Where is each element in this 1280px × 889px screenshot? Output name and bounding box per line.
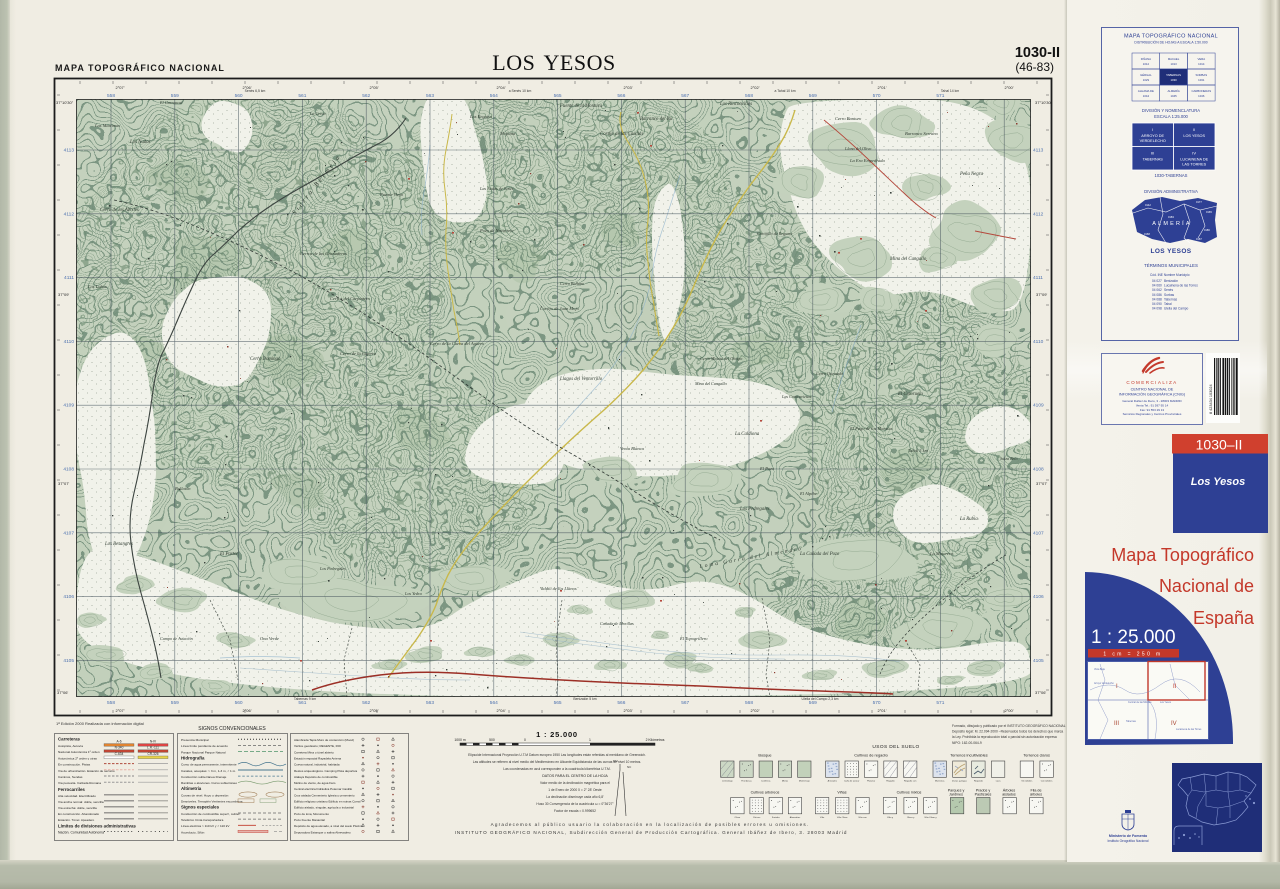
svg-text:0168: 0168 (1144, 232, 1150, 236)
svg-text:Huso 30 Convergencia de la: Huso 30 Convergencia de la cuadrícula ω … (536, 802, 614, 806)
svg-text:Ferrocarriles: Ferrocarriles (58, 787, 85, 792)
svg-text:Arrozales: Arrozales (828, 780, 838, 783)
svg-text:Tabernas: Tabernas (1126, 720, 1137, 723)
svg-text:ALMERÍA: ALMERÍA (1167, 89, 1179, 93)
svg-text:4109: 4109 (1033, 403, 1044, 409)
svg-text:2°01': 2°01' (877, 708, 886, 713)
svg-text:Mapa Topográfico: Mapa Topográfico (1111, 545, 1254, 565)
svg-text:Depósito de agua elevado, a ni: Depósito de agua elevado, a nivel del su… (294, 824, 363, 828)
svg-text:Cultivos arbóreos: Cultivos arbóreos (751, 790, 780, 794)
svg-text:Cruz aislada Cementerio Iglesi: Cruz aislada Cementerio Iglesia y cement… (294, 793, 355, 797)
svg-text:571: 571 (936, 93, 944, 99)
svg-text:Central eléctrica hidráulica P: Central eléctrica hidráulica Potemar Cas… (294, 787, 353, 791)
svg-text:Autopista, Autovía: Autopista, Autovía (58, 744, 83, 748)
svg-text:Edificio religioso cristiano E: Edificio religioso cristiano Edificio en… (294, 800, 361, 804)
svg-text:1045: 1045 (1170, 94, 1177, 98)
svg-text:565: 565 (554, 700, 562, 706)
svg-text:560: 560 (235, 700, 243, 706)
svg-text:Olivar y: Olivar y (907, 816, 915, 819)
svg-text:a Tahal 10 km: a Tahal 10 km (774, 89, 795, 93)
svg-text:Atalaya Depósito de combustibl: Atalaya Depósito de combustible (294, 775, 338, 779)
svg-text:MAPA TOPOGRÁFICO NACIONAL: MAPA TOPOGRÁFICO NACIONAL (55, 63, 225, 73)
svg-text:2°07': 2°07' (115, 708, 124, 713)
svg-text:2°06': 2°06' (242, 708, 251, 713)
svg-text:4111: 4111 (64, 275, 74, 281)
svg-text:559: 559 (171, 700, 179, 706)
svg-text:Uleila del Campo 2,3 km: Uleila del Campo 2,3 km (802, 697, 839, 701)
svg-text:566: 566 (617, 700, 625, 706)
svg-text:Sorbas: Sorbas (1164, 293, 1175, 297)
svg-text:4110: 4110 (64, 339, 75, 345)
svg-text:4112: 4112 (1033, 211, 1044, 217)
svg-text:Agradecemos al público usuario: Agradecemos al público usuario la colabo… (491, 822, 810, 827)
svg-text:37°10'30": 37°10'30" (56, 100, 74, 105)
svg-text:2°03': 2°03' (623, 708, 632, 713)
svg-text:Nacional Autonómica 1º orden: Nacional Autonómica 1º orden (58, 750, 100, 754)
svg-text:Tabernas: Tabernas (1164, 297, 1178, 301)
svg-text:Línea eléctrica > 110 kV y <: Línea eléctrica > 110 kV y < 110 kV (181, 824, 230, 828)
svg-text:2°07': 2°07' (115, 85, 124, 90)
svg-text:0165: 0165 (1206, 210, 1212, 214)
svg-text:Curso de agua permanente, inte: Curso de agua permanente, intermitente (181, 763, 237, 767)
svg-text:GÉRGAL: GÉRGAL (1140, 72, 1152, 77)
svg-text:04 062: 04 062 (1152, 288, 1162, 292)
svg-text:4106: 4106 (63, 594, 74, 600)
svg-text:Jardines: Jardines (949, 792, 963, 796)
svg-text:ARROYO DE: ARROYO DE (1141, 134, 1164, 138)
svg-text:Arroyo Verdelecho: Arroyo Verdelecho (1094, 682, 1114, 685)
svg-text:(46-83): (46-83) (1015, 60, 1054, 74)
svg-text:Nacional de: Nacional de (1159, 576, 1254, 596)
svg-text:1 de Enero de 2000 δ =: 1 de Enero de 2000 δ = 2° 28' Oeste (548, 788, 602, 792)
svg-text:Valor medio de la declinaci: Valor medio de la declinación magnética … (540, 781, 610, 785)
svg-text:Uleila del Campo: Uleila del Campo (1164, 307, 1188, 311)
svg-text:Estación espacial Rayadela Ant: Estación espacial Rayadela Antena (294, 756, 341, 760)
svg-text:37°09': 37°09' (58, 292, 69, 297)
svg-text:N-340: N-340 (115, 746, 124, 750)
svg-text:562: 562 (362, 93, 370, 99)
svg-text:4105: 4105 (63, 658, 74, 664)
svg-text:TABERNAS: TABERNAS (1166, 73, 1181, 77)
svg-text:Vértice geodésico; REGENTE, RO: Vértice geodésico; REGENTE, ROI (294, 744, 341, 748)
svg-text:MAPA TOPOGRÁFICO NACIONAL: MAPA TOPOGRÁFICO NACIONAL (1124, 33, 1218, 40)
svg-text:Desniveles. Terraplén Vertient: Desniveles. Terraplén Vertientes escombr… (181, 800, 243, 804)
svg-text:General Ibáñez de Ibero, 3 - 2: General Ibáñez de Ibero, 3 - 28003 MADRI… (1122, 399, 1182, 403)
svg-text:1: 1 (589, 738, 591, 742)
svg-text:1029: 1029 (1143, 78, 1150, 82)
svg-text:04 098: 04 098 (1152, 307, 1162, 311)
svg-text:C-634: C-634 (115, 752, 124, 756)
svg-text:USOS DEL SUELO: USOS DEL SUELO (872, 744, 919, 750)
svg-text:TÉRMINOS MUNICIPALES: TÉRMINOS MUNICIPALES (1144, 263, 1198, 268)
svg-text:4109: 4109 (63, 403, 74, 409)
svg-text:La declinación disminuye ca: La declinación disminuye cada año 6,8' (546, 795, 604, 799)
svg-text:Alta velocidad. Electrificado: Alta velocidad. Electrificado (58, 794, 96, 798)
svg-text:Venta Tel.: 91 597 95 14: Venta Tel.: 91 597 95 14 (1136, 403, 1169, 407)
svg-text:1 cm = 250 m: 1 cm = 250 m (1103, 652, 1162, 658)
svg-text:VERA: VERA (1197, 57, 1205, 61)
svg-text:Olivar: Olivar (735, 816, 741, 819)
svg-text:Vía pecuaria. Calzada Romana: Vía pecuaria. Calzada Romana (58, 781, 101, 785)
svg-text:2°02': 2°02' (750, 85, 759, 90)
svg-text:0177: 0177 (1196, 200, 1202, 204)
svg-text:ESCALA 1:25.000: ESCALA 1:25.000 (1154, 114, 1188, 119)
svg-text:Viña con: Viña con (858, 816, 867, 819)
svg-text:CENTRO NACIONAL DE: CENTRO NACIONAL DE (1131, 388, 1174, 392)
svg-text:Ministerio de Fomento: Ministerio de Fomento (1109, 834, 1148, 838)
svg-text:Lava: Lava (996, 781, 1002, 783)
svg-text:1 : 25.000: 1 : 25.000 (536, 730, 578, 739)
svg-text:04 088: 04 088 (1152, 297, 1162, 301)
svg-text:ALHAMA DE: ALHAMA DE (1138, 89, 1154, 93)
svg-text:CARBONERAS: CARBONERAS (1192, 89, 1212, 93)
svg-text:8 423434 103024: 8 423434 103024 (1209, 384, 1213, 414)
svg-text:0183: 0183 (1168, 215, 1174, 219)
svg-text:1044: 1044 (1143, 94, 1150, 98)
svg-text:Alambrada Tapia Muro de conten: Alambrada Tapia Muro de contención (Mood… (294, 738, 354, 742)
svg-text:1000 m: 1000 m (454, 738, 465, 742)
svg-text:Lentisbego: Lentisbego (722, 780, 733, 783)
svg-text:Regadío: Regadío (886, 781, 895, 783)
svg-text:NIPO: 162-00-064-9: NIPO: 162-00-064-9 (952, 741, 982, 745)
svg-text:2°02': 2°02' (750, 708, 759, 713)
svg-text:04 086: 04 086 (1152, 293, 1162, 297)
svg-text:1030: 1030 (1170, 78, 1177, 82)
svg-text:Sin árboles: Sin árboles (1021, 780, 1033, 783)
svg-text:4113: 4113 (1033, 148, 1044, 154)
svg-text:500: 500 (489, 738, 495, 742)
svg-text:567: 567 (681, 700, 689, 706)
svg-text:37°09': 37°09' (1036, 292, 1047, 297)
svg-text:2°00': 2°00' (1004, 708, 1013, 713)
svg-text:LOS YESOS: LOS YESOS (492, 50, 615, 75)
svg-text:VERDELECHO: VERDELECHO (1140, 139, 1166, 143)
svg-text:4111: 4111 (1033, 275, 1043, 281)
svg-text:2°05': 2°05' (369, 85, 378, 90)
svg-text:III: III (1114, 721, 1119, 727)
svg-text:Altimetría: Altimetría (181, 786, 202, 791)
svg-text:561: 561 (298, 93, 306, 99)
svg-text:0187: 0187 (1196, 237, 1202, 241)
svg-text:Bosque: Bosque (758, 753, 771, 758)
svg-text:37°06': 37°06' (1035, 690, 1046, 695)
svg-text:1030-II: 1030-II (1015, 45, 1060, 61)
svg-text:Instituto Geográfico Nacional: Instituto Geográfico Nacional (1108, 839, 1149, 843)
svg-text:MACAEL: MACAEL (1168, 57, 1180, 61)
svg-text:2 Kilómetros: 2 Kilómetros (646, 738, 665, 742)
svg-text:Depuradora Estanque o salina A: Depuradora Estanque o salina Abrevadero (294, 830, 351, 834)
svg-text:Parque Nacional Parque Natural: Parque Nacional Parque Natural (181, 750, 226, 754)
svg-text:2°04': 2°04' (496, 708, 505, 713)
svg-text:CR-326: CR-326 (148, 752, 159, 756)
svg-text:Senés: Senés (1164, 288, 1173, 292)
svg-text:INFORMACIÓN GEOGRÁFICA (CNIG: INFORMACIÓN GEOGRÁFICA (CNIG) (1119, 392, 1186, 397)
svg-text:1 : 25.000: 1 : 25.000 (1091, 627, 1176, 648)
svg-text:INSTITUTO GEOGRÁFICO NACIONAL,: INSTITUTO GEOGRÁFICO NACIONAL, Subdirecc… (455, 829, 848, 835)
svg-text:37°10'30": 37°10'30" (1035, 100, 1053, 105)
svg-text:2°04': 2°04' (496, 85, 505, 90)
svg-text:Viña Olivar: Viña Olivar (837, 816, 848, 819)
svg-text:Ramblas o aluviones. Curso sub: Ramblas o aluviones. Curso subterráneo (181, 781, 237, 785)
svg-text:4105: 4105 (1033, 658, 1044, 664)
svg-text:Lucainena de las Torres: Lucainena de las Torres (1164, 284, 1198, 288)
svg-text:L.R.-111: L.R.-111 (147, 746, 159, 750)
svg-text:0186: 0186 (1204, 228, 1210, 232)
svg-text:LOS YESOS: LOS YESOS (1183, 134, 1205, 138)
svg-text:Canales, acequias: > 3 m, 1-3: Canales, acequias: > 3 m, 1-3 m, < 1 m. (181, 769, 236, 773)
svg-text:DATOS PARA EL CENTRO DE L: DATOS PARA EL CENTRO DE LA HOJA (542, 774, 608, 778)
svg-text:NM: NM (613, 759, 618, 763)
svg-text:Elipsoide Internacional Proye: Elipsoide Internacional Proyección U.T.M… (468, 753, 646, 757)
svg-text:I: I (1152, 127, 1153, 132)
svg-text:Mixtos: Mixtos (782, 780, 789, 783)
svg-text:LOS YESOS: LOS YESOS (1150, 248, 1191, 255)
svg-text:árboles: árboles (1030, 792, 1042, 796)
svg-text:Signos especiales: Signos especiales (181, 805, 220, 810)
svg-text:564: 564 (490, 700, 498, 706)
svg-text:4106: 4106 (1033, 594, 1044, 600)
svg-text:Nación. Comunidad Autónoma: Nación. Comunidad Autónoma (58, 830, 104, 834)
svg-text:Cultivos mixtos: Cultivos mixtos (897, 790, 922, 794)
svg-text:aislados: aislados (1002, 792, 1016, 796)
svg-text:II: II (1193, 127, 1195, 132)
svg-text:37°07': 37°07' (1036, 481, 1047, 486)
svg-text:España: España (1193, 608, 1255, 628)
svg-text:Benizalón: Benizalón (1164, 279, 1178, 283)
svg-text:1031: 1031 (1198, 78, 1205, 82)
svg-text:Roquedo: Roquedo (974, 781, 984, 783)
svg-text:Central de las Minillas: Central de las Minillas (1128, 701, 1152, 704)
svg-text:SORBAS: SORBAS (1195, 73, 1207, 77)
svg-text:Carreteras: Carreteras (58, 737, 81, 742)
svg-text:Conducción subterránea Drenaje: Conducción subterránea Drenaje (181, 775, 227, 779)
svg-text:Línea límite pendiente de acue: Línea límite pendiente de acuerdo (181, 744, 228, 748)
svg-text:1014: 1014 (1198, 62, 1205, 66)
svg-text:Cultivos de regadío: Cultivos de regadío (854, 753, 888, 758)
svg-text:558: 558 (107, 93, 115, 99)
svg-text:4112: 4112 (64, 211, 75, 217)
svg-text:37°07': 37°07' (58, 481, 69, 486)
svg-text:04 090: 04 090 (1152, 302, 1162, 306)
svg-text:Pozo de lona, Monumento: Pozo de lona, Monumento (294, 812, 329, 816)
svg-text:1013: 1013 (1170, 62, 1177, 66)
svg-text:Coníferas: Coníferas (761, 780, 771, 783)
svg-text:Presencia Municipal: Presencia Municipal (181, 738, 209, 742)
svg-text:Cód. INE Nombre Municipio: Cód. INE Nombre Municipio (1150, 273, 1190, 277)
svg-text:567: 567 (681, 93, 689, 99)
svg-text:En construcción. Abandonado: En construcción. Abandonado (58, 812, 99, 816)
svg-text:Vista Baja: Vista Baja (1094, 668, 1105, 671)
svg-text:563: 563 (426, 93, 434, 99)
svg-text:COMERCIALIZA: COMERCIALIZA (1126, 380, 1177, 385)
svg-text:IV: IV (1192, 151, 1196, 156)
svg-text:Viña y: Viña y (887, 816, 894, 819)
svg-text:4110: 4110 (1033, 339, 1044, 345)
svg-text:LAS TORRES: LAS TORRES (1182, 163, 1206, 167)
svg-text:Pozo Fuente Manantial: Pozo Fuente Manantial (294, 818, 325, 822)
svg-text:2°01': 2°01' (877, 85, 886, 90)
svg-text:04 027: 04 027 (1152, 279, 1162, 283)
svg-text:Tabernas 9 km: Tabernas 9 km (294, 697, 316, 701)
svg-text:568: 568 (745, 93, 753, 99)
svg-text:1012: 1012 (1143, 62, 1150, 66)
svg-text:IV: IV (1171, 721, 1177, 727)
svg-text:DIVISIÓN ADMINISTRATIVA: DIVISIÓN ADMINISTRATIVA (1144, 189, 1198, 194)
svg-text:ALMERÍA: ALMERÍA (1152, 220, 1192, 227)
svg-text:En construcción. Pistas: En construcción. Pistas (58, 763, 91, 767)
svg-text:566: 566 (617, 93, 625, 99)
svg-text:569: 569 (809, 93, 817, 99)
svg-text:N-IV: N-IV (150, 739, 157, 743)
svg-text:570: 570 (873, 700, 881, 706)
svg-text:0142: 0142 (1145, 203, 1151, 207)
svg-text:1046: 1046 (1198, 94, 1205, 98)
svg-text:Viñas: Viñas (837, 790, 846, 794)
svg-text:Servicios Regionales y Centros: Servicios Regionales y Centros Provincia… (1123, 412, 1182, 416)
svg-text:Regadío con: Regadío con (904, 781, 917, 783)
svg-text:4107: 4107 (63, 530, 74, 536)
svg-text:Estación. Túnel. Apeadero: Estación. Túnel. Apeadero (58, 818, 95, 822)
svg-text:Depósito legal: M. 22.094-2000: Depósito legal: M. 22.094-2000 –Reservad… (952, 730, 1063, 734)
svg-text:Frutales: Frutales (772, 816, 781, 819)
svg-text:4113: 4113 (64, 148, 75, 154)
svg-text:Vía ancha normal: doble, senci: Vía ancha normal: doble, sencilla (58, 800, 104, 804)
svg-text:559: 559 (171, 93, 179, 99)
svg-text:Fax: 91 553 29 13: Fax: 91 553 29 13 (1140, 408, 1165, 412)
svg-text:Acueducto, Sifón: Acueducto, Sifón (181, 830, 205, 834)
svg-text:FIÑANA: FIÑANA (1141, 56, 1151, 61)
svg-text:Molino de viento, de agua Faro: Molino de viento, de agua Faro (294, 781, 336, 785)
svg-text:2°00': 2°00' (1004, 85, 1013, 90)
svg-text:Almendros: Almendros (790, 816, 801, 819)
svg-text:4107: 4107 (1033, 530, 1044, 536)
svg-text:Los Yesos: Los Yesos (1191, 476, 1245, 488)
svg-text:37°06': 37°06' (57, 690, 68, 695)
svg-text:Vía estrecha: doble, sencilla: Vía estrecha: doble, sencilla (58, 806, 97, 810)
svg-text:LUCAINENA DE: LUCAINENA DE (1180, 158, 1208, 162)
svg-text:1030–II: 1030–II (1196, 437, 1243, 453)
svg-text:Cítricos: Cítricos (753, 816, 761, 819)
svg-text:565: 565 (554, 93, 562, 99)
svg-text:Caminos, Sendas: Caminos, Sendas (58, 775, 83, 779)
svg-text:Con árboles: Con árboles (1041, 780, 1054, 783)
svg-text:SIGNOS CONVENCIONALES: SIGNOS CONVENCIONALES (198, 726, 266, 732)
svg-text:4108: 4108 (1033, 467, 1044, 473)
svg-text:III: III (1151, 151, 1154, 156)
svg-text:TABERNAS: TABERNAS (1143, 158, 1164, 162)
svg-text:Platanar: Platanar (867, 780, 875, 783)
svg-text:Terrenos claros: Terrenos claros (1023, 753, 1050, 758)
svg-text:NC: NC (627, 765, 632, 769)
svg-text:Conducción de combustible supe: Conducción de combustible superf., subte… (181, 812, 240, 816)
svg-text:562: 562 (362, 700, 370, 706)
svg-text:Carretera Mina o túnel abierto: Carretera Mina o túnel abierto (294, 750, 334, 754)
svg-text:04 060: 04 060 (1152, 284, 1162, 288)
svg-text:Marismas: Marismas (935, 780, 945, 783)
svg-text:1030-TABERNAS: 1030-TABERNAS (1155, 173, 1188, 178)
svg-text:570: 570 (873, 93, 881, 99)
svg-text:Cueva natural, industrial, hab: Cueva natural, industrial, habitada (294, 763, 340, 767)
svg-text:Autonómica 2º orden y otras: Autonómica 2º orden y otras (58, 756, 97, 760)
svg-text:Terrenos incultivables: Terrenos incultivables (950, 753, 987, 758)
svg-text:Senés 6,5 km: Senés 6,5 km (245, 89, 266, 93)
svg-text:Los Yesos: Los Yesos (1160, 701, 1172, 704)
svg-text:0: 0 (524, 738, 526, 742)
svg-text:Lucainena de las Torres: Lucainena de las Torres (1176, 728, 1202, 731)
svg-text:558: 558 (107, 700, 115, 706)
svg-text:2°05': 2°05' (369, 708, 378, 713)
svg-text:DIVISIÓN Y NOMENCLATURA: DIVISIÓN Y NOMENCLATURA (1142, 108, 1200, 113)
svg-text:Edificio aislado, singular, ag: Edificio aislado, singular, agrícola o i… (294, 806, 354, 810)
svg-text:2°03': 2°03' (623, 85, 632, 90)
svg-text:568: 568 (745, 700, 753, 706)
svg-text:Formado, dibujado y publicado: Formado, dibujado y publicado por el INS… (952, 724, 1066, 728)
svg-text:DISTRIBUCIÓN DE HOJAS A ES: DISTRIBUCIÓN DE HOJAS A ESCALA 1:50.000 (1134, 40, 1207, 45)
svg-text:Benizalón 5 km: Benizalón 5 km (573, 697, 596, 701)
svg-text:560: 560 (235, 93, 243, 99)
svg-text:Dunas y playas: Dunas y playas (952, 781, 968, 783)
svg-text:1ª Edición 2000 Realizada con: 1ª Edición 2000 Realizada con informació… (56, 721, 144, 726)
svg-text:la Ley. Prohibida la reproducc: la Ley. Prohibida la reproducción total … (952, 735, 1057, 739)
svg-text:Teleférico Cinta transportador: Teleférico Cinta transportadora (181, 818, 224, 822)
svg-text:Tahal 14 km: Tahal 14 km (941, 89, 959, 93)
svg-text:Restos arqueológicos. Camping: Restos arqueológicos. Camping Pista depo… (294, 769, 358, 773)
svg-text:563: 563 (426, 700, 434, 706)
svg-text:571: 571 (936, 700, 944, 706)
svg-text:A-6: A-6 (117, 739, 122, 743)
svg-text:Factor de escala = 0.99: Factor de escala = 0.999652 (554, 809, 596, 813)
svg-text:Pastizales: Pastizales (975, 792, 992, 796)
svg-text:Tahal: Tahal (1164, 302, 1172, 306)
svg-text:564: 564 (490, 93, 498, 99)
svg-text:Límites de divisiones administ: Límites de divisiones administrativas (58, 823, 136, 828)
svg-text:Monte bajo: Monte bajo (799, 780, 811, 783)
svg-text:Viña: Viña (820, 816, 825, 819)
svg-text:a Senés 10 km: a Senés 10 km (509, 89, 532, 93)
svg-text:Frondosas: Frondosas (741, 780, 752, 783)
svg-text:Curvas de nivel. Hoyo o depres: Curvas de nivel. Hoyo o depresión (181, 793, 229, 797)
svg-text:4108: 4108 (63, 467, 74, 473)
svg-text:Hidrografía: Hidrografía (181, 755, 205, 760)
svg-text:Caña de azúcar: Caña de azúcar (844, 780, 860, 783)
svg-text:Viña Olivar y: Viña Olivar y (924, 816, 937, 819)
svg-text:Las coordenadas en azul cor: Las coordenadas en azul corresponden a l… (503, 767, 610, 771)
svg-text:II: II (1173, 684, 1177, 690)
